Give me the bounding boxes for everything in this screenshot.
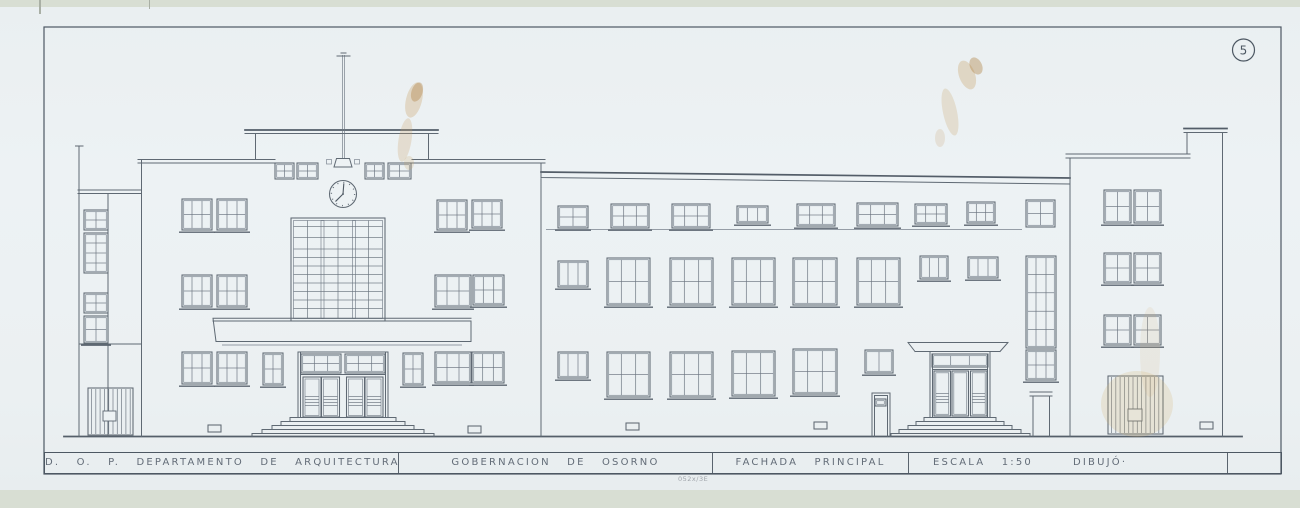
window (297, 163, 318, 179)
window (1023, 350, 1059, 382)
window (214, 199, 250, 232)
window (301, 354, 341, 373)
canopy-band (213, 318, 471, 345)
window (964, 202, 998, 225)
window (932, 354, 988, 367)
right-entrance-doors (934, 371, 987, 416)
window (854, 258, 903, 307)
window (84, 233, 108, 273)
windows-layer (81, 163, 1164, 435)
title-cell-signature (1228, 453, 1281, 473)
window (470, 275, 507, 307)
clock (330, 181, 357, 208)
window (862, 350, 896, 375)
window (1026, 256, 1056, 348)
stain-right-gate (1101, 307, 1173, 437)
window (214, 275, 250, 309)
main-stair-window (291, 218, 385, 321)
window (965, 257, 1001, 280)
window (1101, 315, 1134, 347)
window (854, 203, 901, 228)
clock-hands (336, 184, 344, 201)
right-entrance-canopy (908, 343, 1008, 352)
window (1101, 190, 1134, 225)
window (790, 349, 840, 396)
window (604, 258, 653, 307)
window (469, 200, 505, 230)
vent (468, 426, 481, 433)
window (345, 354, 385, 373)
coffee-stain-left (395, 81, 426, 170)
title-block: D. O. P. DEPARTAMENTO DE ARQUITECTURA GO… (44, 452, 1282, 474)
entrance-doors (303, 377, 383, 417)
sheet-number-badge: 5 (1233, 39, 1255, 61)
window (875, 399, 886, 406)
window (1131, 190, 1164, 225)
barred-gate (88, 388, 133, 435)
window (604, 352, 653, 399)
window (179, 352, 215, 386)
scale-label: ESCALA 1:50 (933, 453, 1033, 472)
elevation-drawing: 5 (0, 0, 1300, 508)
window (434, 200, 470, 232)
coffee-stain-right (935, 55, 985, 147)
main-entrance (252, 352, 434, 437)
vent (626, 423, 639, 430)
window (669, 204, 713, 230)
flagpole (327, 53, 360, 167)
window (1026, 200, 1055, 227)
window (432, 352, 474, 385)
window (608, 204, 652, 230)
wing-parapet (541, 172, 1070, 178)
window (179, 199, 215, 232)
pencil-note: 052x/3E (678, 475, 708, 483)
window (667, 352, 716, 399)
vent (208, 425, 221, 432)
sheet-number: 5 (1240, 44, 1248, 58)
window (179, 275, 215, 309)
department-label: D. O. P. DEPARTAMENTO DE ARQUITECTURA (45, 457, 399, 468)
window (729, 351, 778, 398)
scanned-blueprint: { "sheet": { "number": "5" }, "title_blo… (0, 0, 1300, 508)
window (794, 204, 838, 228)
drawn-by-label: DIBUJÓ· (1073, 453, 1127, 472)
title-cell-scale: ESCALA 1:50 DIBUJÓ· (909, 453, 1228, 473)
window (275, 163, 294, 179)
title-cell-view: FACHADA PRINCIPAL (713, 453, 909, 473)
window (790, 258, 840, 307)
window (365, 163, 384, 179)
window (729, 258, 778, 307)
title-cell-project: GOBERNACION DE OSORNO (399, 453, 713, 473)
project-label: GOBERNACION DE OSORNO (451, 457, 659, 468)
window (1131, 253, 1164, 285)
window (469, 352, 507, 385)
window (400, 353, 426, 387)
window (260, 353, 286, 387)
window (667, 258, 716, 307)
window (555, 261, 591, 289)
window (1101, 253, 1134, 285)
vent (814, 422, 827, 429)
window (84, 293, 108, 313)
vent (1200, 422, 1213, 429)
window (84, 210, 108, 230)
window (214, 352, 250, 386)
window (912, 204, 950, 226)
window (734, 206, 771, 225)
title-cell-department: D. O. P. DEPARTAMENTO DE ARQUITECTURA (45, 453, 399, 473)
window (81, 316, 111, 345)
pedestal (1030, 392, 1052, 437)
entrance-steps (252, 418, 434, 437)
window (917, 256, 951, 281)
right-entrance-steps (891, 418, 1030, 437)
window (555, 352, 591, 380)
view-label: FACHADA PRINCIPAL (736, 457, 886, 468)
border-frame (44, 27, 1281, 474)
window (555, 206, 591, 230)
window (432, 275, 474, 309)
